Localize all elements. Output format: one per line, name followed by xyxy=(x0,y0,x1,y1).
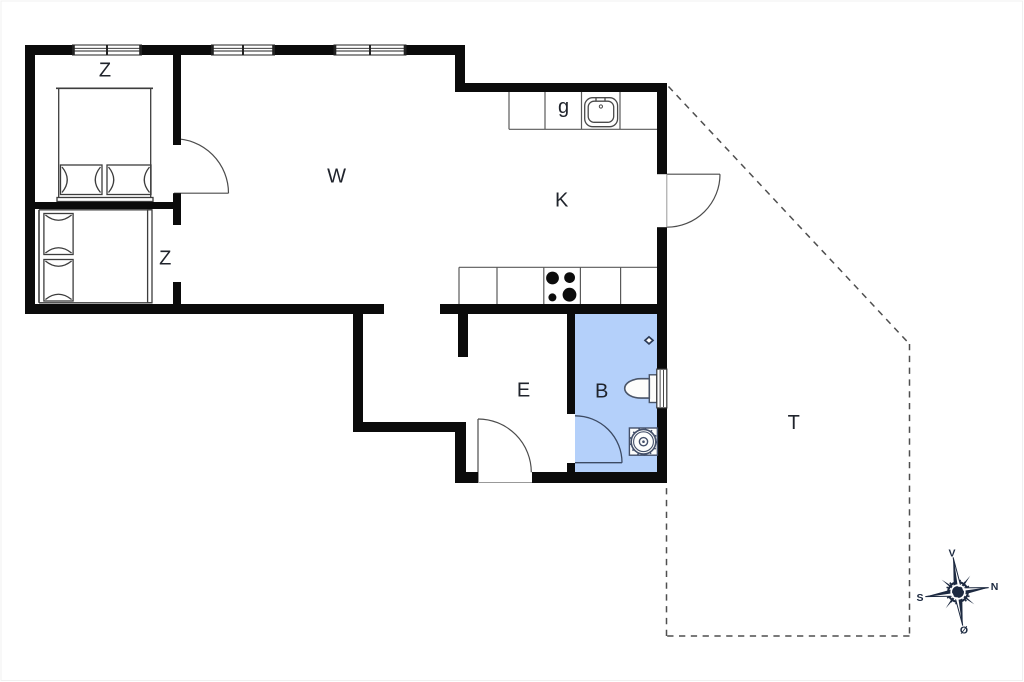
svg-text:E: E xyxy=(517,379,530,401)
svg-text:B: B xyxy=(595,380,608,402)
svg-text:g: g xyxy=(558,96,569,118)
svg-text:W: W xyxy=(327,166,346,188)
svg-text:Ø: Ø xyxy=(960,625,968,637)
svg-text:Z: Z xyxy=(99,59,111,81)
svg-text:N: N xyxy=(991,581,999,593)
svg-text:S: S xyxy=(916,592,923,604)
svg-text:V: V xyxy=(948,547,955,559)
svg-text:K: K xyxy=(555,190,569,212)
svg-text:Z: Z xyxy=(159,247,171,269)
svg-text:T: T xyxy=(788,412,800,434)
